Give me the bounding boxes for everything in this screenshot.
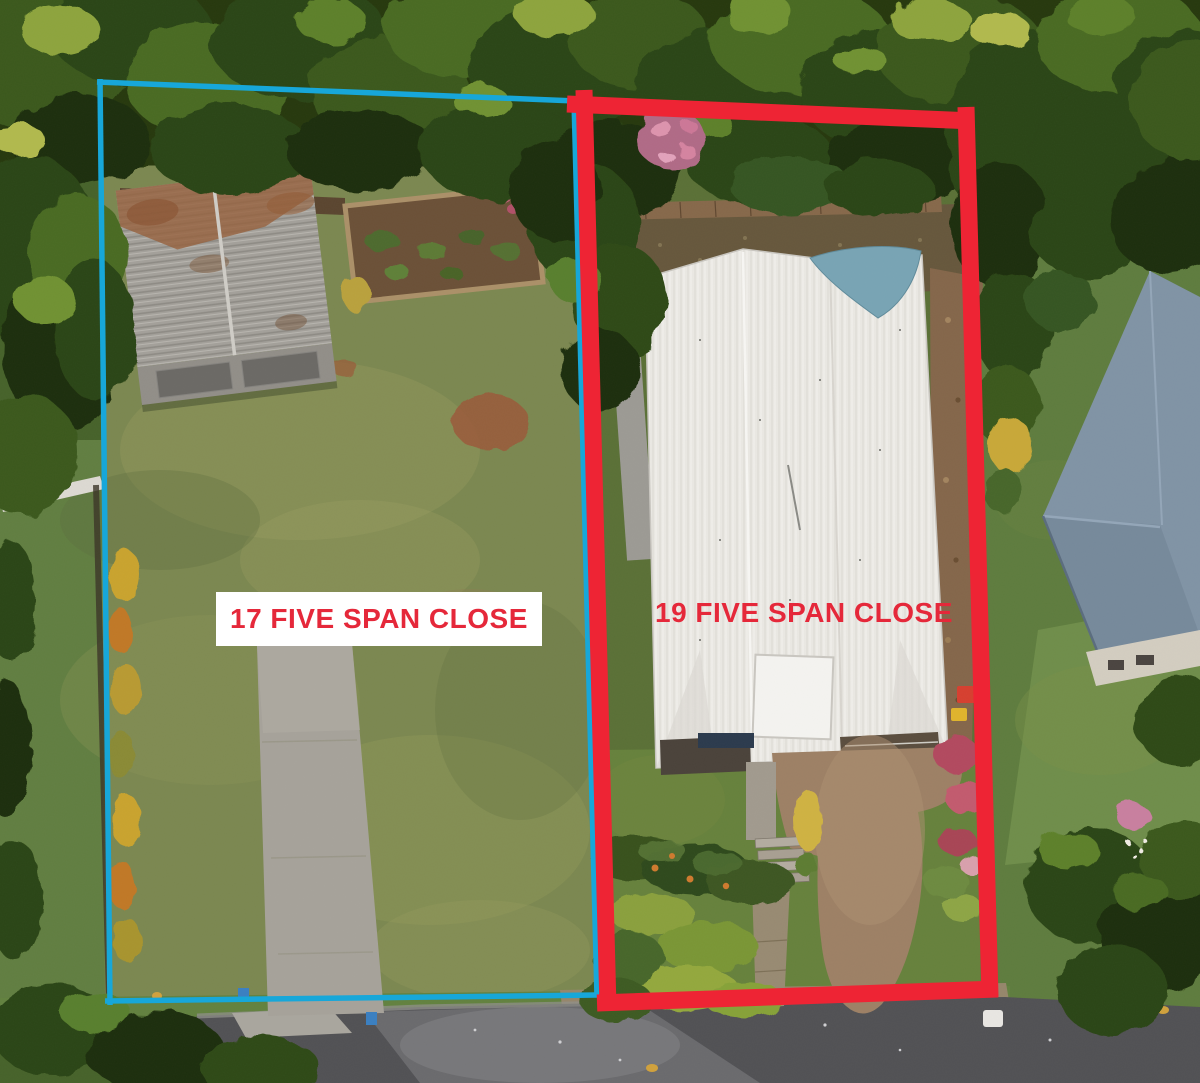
lot17-label: 17 FIVE SPAN CLOSE (216, 592, 542, 646)
lot19-label: 19 FIVE SPAN CLOSE (655, 599, 953, 627)
scene-svg (0, 0, 1200, 1083)
aerial-photo: 17 FIVE SPAN CLOSE 19 FIVE SPAN CLOSE (0, 0, 1200, 1083)
